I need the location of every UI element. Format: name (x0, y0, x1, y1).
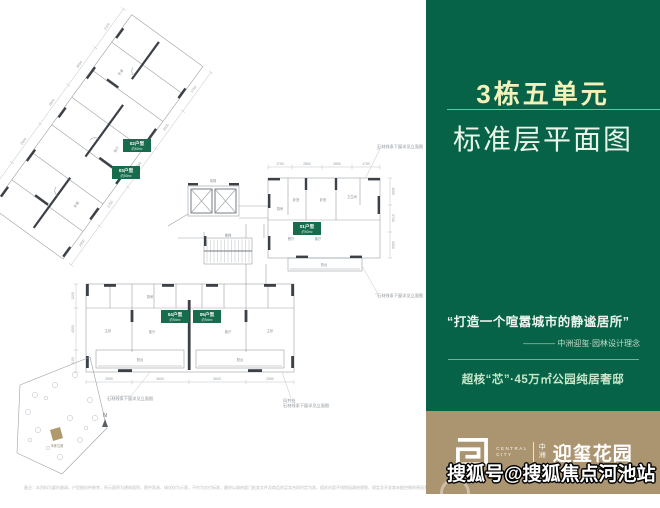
room-label: 阳台 (237, 357, 244, 362)
unit-area: 约50m² (120, 173, 132, 178)
unit-name: 03户型 (119, 167, 134, 174)
unit-name: 01户型 (300, 223, 315, 230)
quote-text: “打造一个喧嚣城市的静谧居所” (447, 311, 630, 330)
site-label: 本栋位置 (51, 443, 64, 448)
brand-en-line2: CITY (496, 452, 528, 458)
room-label: 卧室 (293, 197, 300, 202)
dim-label: 3600 (213, 377, 221, 381)
page: { "panel": { "building_title": "3栋五单元", … (0, 0, 660, 494)
unit-area: 约94m² (201, 317, 213, 322)
sohu-watermark: 搜狐号@搜狐焦点河池站 (447, 459, 656, 486)
room-label: 电梯 (210, 178, 217, 183)
divider (447, 109, 660, 110)
unit-area: 约94m² (169, 317, 181, 322)
unit01-wing: 卧室 卧室 卫生间 厨房 餐厅 客厅 阳台 1750 2850 2850 175… (268, 143, 423, 299)
unit-labels: 02户型 约62m² 03户型 约50m² 01户型 约92m² 04户型 约9… (112, 139, 321, 323)
room-label: 主卧 (267, 328, 274, 333)
room-label: 客厅 (112, 145, 120, 154)
site-building-marker (50, 427, 63, 441)
unit-area: 约92m² (301, 229, 313, 234)
dim-label: 2100 (103, 22, 111, 31)
room-label: 阳台 (137, 357, 144, 362)
room-label: 厨房 (147, 294, 154, 299)
core-elevators-stairs: 电梯 楼梯 (168, 178, 268, 264)
north-arrow-icon (102, 419, 108, 427)
room-label: 卧室 (116, 67, 124, 76)
room-label: 厨房 (277, 206, 284, 211)
annotation: 石材线条下窗详见立面图 (377, 143, 423, 150)
building-title: 3栋五单元 (426, 74, 660, 111)
room-label: 餐厅 (288, 236, 295, 241)
dim-label: 2550 (105, 377, 113, 381)
annotation: 石材线条下窗详见立面图 (377, 292, 423, 299)
room-label: 客厅 (315, 236, 322, 241)
unit-name: 04户型 (168, 311, 183, 318)
diagonal-wing: 2900 1750 2850 2900 1750 1750 2900 2900 … (0, 6, 213, 266)
brand-en: CENTRAL CITY (496, 446, 528, 457)
unit-area: 约62m² (131, 146, 143, 151)
dim-label: 1200 (71, 292, 75, 300)
units0405-wing: 主卧 厨房 客厅 阳台 客厅 主卧 阳台 2550 3600 3600 2550… (71, 264, 329, 409)
dim-label: 4200 (71, 325, 75, 333)
dim-label: 2700 (391, 214, 395, 222)
dim-label: 2900 (48, 98, 56, 107)
divider (448, 359, 639, 360)
brand-cn-small: 中洲 (539, 444, 548, 459)
room-label: 卫生间 (347, 194, 357, 199)
plan-title: 标准层平面图 (426, 118, 660, 158)
unit-name: 05户型 (200, 311, 215, 318)
dim-label: 1750 (362, 162, 370, 166)
floor-plan-svg: 2900 1750 2850 2900 1750 1750 2900 2900 … (0, 0, 426, 494)
annotation: 石材线条下窗详见立面图 (107, 395, 153, 402)
room-label: 卧室 (320, 197, 327, 202)
info-panel: 3栋五单元 标准层平面图 “打造一个喧嚣城市的静谧居所” ———— 中洲迎玺·园… (426, 0, 660, 411)
dim-label: 1500 (391, 187, 395, 195)
room-label: 客厅 (149, 329, 156, 334)
quote-attribution: ———— 中洲迎玺·园林设计理念 (440, 338, 640, 349)
unit-name: 02户型 (130, 140, 145, 147)
dim-label: 2850 (333, 162, 341, 166)
room-label: 卧室 (72, 200, 80, 209)
north-label: N (103, 413, 107, 419)
dim-label: 2850 (76, 60, 84, 69)
dim-label: 2850 (303, 162, 311, 166)
tagline: 超核“芯”·45万㎡公园纯居奢邸 (426, 371, 660, 387)
annotation: 石材线条下窗详见立面图 (283, 402, 329, 409)
dim-label: 2900 (20, 137, 28, 146)
dim-label: 1750 (276, 162, 284, 166)
room-label: 客厅 (225, 329, 232, 334)
room-label: 楼梯 (225, 233, 232, 238)
room-label: 主卧 (105, 328, 112, 333)
dim-label: 2550 (266, 377, 274, 381)
disclaimer-text: 备注：本资料为要约邀请，户型图仅供参考，所示面积为建筑面积，图中家具、绿化仅为示… (24, 484, 426, 490)
site-plan: 本栋位置 N (17, 357, 108, 474)
dim-label: 3600 (156, 377, 164, 381)
dim-label: 3300 (391, 241, 395, 249)
room-label: 阳台 (321, 262, 328, 267)
